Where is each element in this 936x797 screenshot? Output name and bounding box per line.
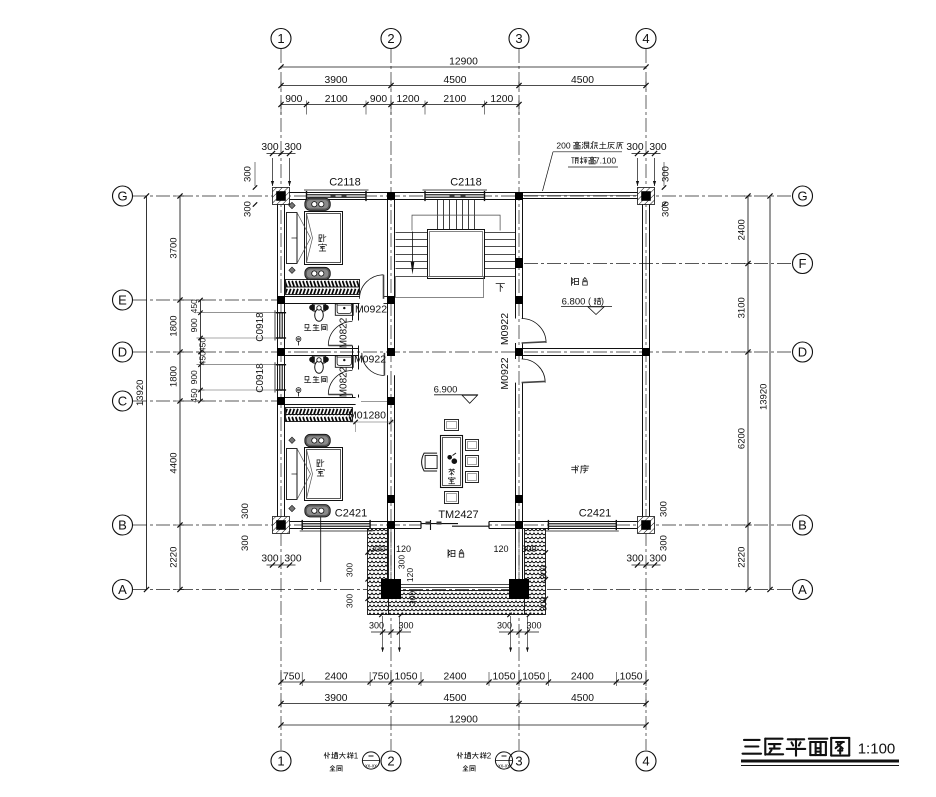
svg-text:1800: 1800	[169, 315, 180, 336]
svg-text:2220: 2220	[169, 547, 180, 568]
svg-text:300: 300	[661, 166, 672, 182]
svg-text:1200: 1200	[490, 94, 513, 105]
svg-text:2: 2	[387, 753, 394, 768]
svg-text:300: 300	[398, 621, 413, 631]
svg-text:2400: 2400	[737, 219, 748, 240]
svg-text:300: 300	[369, 621, 384, 631]
svg-text:A: A	[118, 582, 127, 597]
svg-text:300: 300	[661, 201, 672, 217]
svg-text:6200: 6200	[737, 428, 748, 449]
svg-text:3700: 3700	[169, 237, 180, 258]
svg-text:B: B	[118, 517, 127, 532]
svg-text:1:100: 1:100	[858, 741, 896, 758]
svg-text:4: 4	[642, 31, 649, 46]
svg-text:3: 3	[515, 753, 522, 768]
svg-text:6.900: 6.900	[434, 385, 458, 396]
svg-text:TM2427: TM2427	[438, 509, 478, 521]
svg-text:xx-xx: xx-xx	[365, 764, 377, 770]
svg-text:1050: 1050	[493, 672, 516, 683]
svg-text:300: 300	[345, 594, 355, 608]
svg-text:2: 2	[387, 31, 394, 46]
svg-text:D: D	[118, 344, 127, 359]
svg-text:300: 300	[626, 554, 643, 565]
svg-text:B: B	[798, 517, 807, 532]
svg-text:3100: 3100	[737, 297, 748, 318]
svg-text:13920: 13920	[135, 380, 146, 406]
svg-text:2400: 2400	[571, 672, 594, 683]
svg-text:1: 1	[277, 31, 284, 46]
svg-text:C0918: C0918	[255, 363, 266, 393]
svg-text:M0922: M0922	[355, 304, 387, 316]
svg-text:12900: 12900	[449, 715, 478, 726]
svg-text:G: G	[117, 188, 127, 203]
svg-text:300: 300	[370, 544, 385, 554]
svg-text:M0922: M0922	[499, 357, 511, 389]
svg-text:3900: 3900	[325, 75, 348, 86]
svg-text:300: 300	[261, 554, 278, 565]
svg-text:2100: 2100	[325, 94, 348, 105]
svg-text:12900: 12900	[449, 57, 478, 68]
svg-text:200: 200	[556, 141, 570, 151]
svg-text:2220: 2220	[737, 547, 748, 568]
svg-text:1: 1	[277, 753, 284, 768]
svg-text:M0922: M0922	[354, 354, 386, 366]
svg-text:1050: 1050	[395, 672, 418, 683]
svg-text:M0922: M0922	[499, 313, 511, 345]
svg-text:300: 300	[659, 501, 670, 517]
svg-text:300: 300	[284, 554, 301, 565]
svg-text:C: C	[118, 393, 127, 408]
svg-text:(: (	[588, 296, 591, 306]
svg-text:D: D	[798, 344, 807, 359]
svg-text:450: 450	[189, 299, 199, 313]
svg-text:A: A	[798, 582, 807, 597]
svg-text:450: 450	[198, 338, 208, 352]
svg-text:E: E	[118, 292, 127, 307]
svg-text:1200: 1200	[397, 94, 420, 105]
svg-text:900: 900	[189, 318, 199, 332]
svg-text:1800: 1800	[169, 366, 180, 387]
svg-text:750: 750	[283, 672, 300, 683]
svg-text:300: 300	[526, 621, 541, 631]
svg-text:450: 450	[189, 388, 199, 402]
svg-text:2400: 2400	[325, 672, 348, 683]
svg-text:xx-xx: xx-xx	[498, 764, 510, 770]
svg-text:6.800: 6.800	[562, 297, 586, 308]
svg-text:750: 750	[372, 672, 389, 683]
svg-text:4500: 4500	[444, 75, 467, 86]
svg-text:450: 450	[198, 351, 208, 365]
svg-text:300: 300	[626, 142, 643, 153]
svg-text:300: 300	[240, 503, 251, 519]
svg-text:C0918: C0918	[255, 312, 266, 342]
svg-text:300: 300	[284, 142, 301, 153]
svg-text:2100: 2100	[443, 94, 466, 105]
svg-text:C2118: C2118	[450, 177, 482, 189]
svg-text:300: 300	[397, 555, 407, 569]
svg-text:3900: 3900	[325, 693, 348, 704]
svg-text:M01280: M01280	[348, 410, 386, 422]
svg-text:4: 4	[642, 753, 649, 768]
svg-text:4500: 4500	[444, 693, 467, 704]
svg-text:900: 900	[189, 370, 199, 384]
svg-text:1050: 1050	[620, 672, 643, 683]
svg-text:4400: 4400	[169, 452, 180, 473]
svg-text:4500: 4500	[571, 693, 594, 704]
svg-text:300: 300	[497, 621, 512, 631]
svg-text:7.100: 7.100	[595, 156, 617, 166]
svg-text:C2421: C2421	[579, 508, 611, 520]
svg-text:C2118: C2118	[329, 177, 361, 189]
svg-text:2400: 2400	[444, 672, 467, 683]
svg-text:300: 300	[521, 544, 536, 554]
svg-text:300: 300	[243, 201, 254, 217]
svg-text:F: F	[799, 256, 807, 271]
svg-text:3: 3	[515, 31, 522, 46]
svg-text:900: 900	[370, 94, 387, 105]
svg-text:300: 300	[261, 142, 278, 153]
svg-text:300: 300	[649, 554, 666, 565]
svg-text:): )	[601, 296, 604, 306]
svg-text:M0822: M0822	[339, 366, 350, 397]
svg-text:300: 300	[659, 535, 670, 551]
svg-text:300: 300	[243, 166, 254, 182]
svg-text:2: 2	[487, 752, 492, 761]
svg-text:1050: 1050	[522, 672, 545, 683]
svg-text:300: 300	[240, 535, 251, 551]
svg-text:300: 300	[649, 142, 666, 153]
svg-text:G: G	[797, 188, 807, 203]
svg-text:13920: 13920	[759, 384, 770, 410]
svg-text:120: 120	[396, 544, 411, 554]
svg-text:M0822: M0822	[339, 317, 350, 348]
svg-text:300: 300	[408, 591, 418, 605]
svg-text:4500: 4500	[571, 75, 594, 86]
svg-text:1: 1	[354, 752, 359, 761]
svg-text:300: 300	[345, 563, 355, 577]
svg-text:300: 300	[539, 565, 549, 579]
svg-text:C2421: C2421	[335, 508, 367, 520]
svg-text:900: 900	[285, 94, 302, 105]
svg-text:300: 300	[539, 597, 549, 611]
svg-text:120: 120	[493, 544, 508, 554]
